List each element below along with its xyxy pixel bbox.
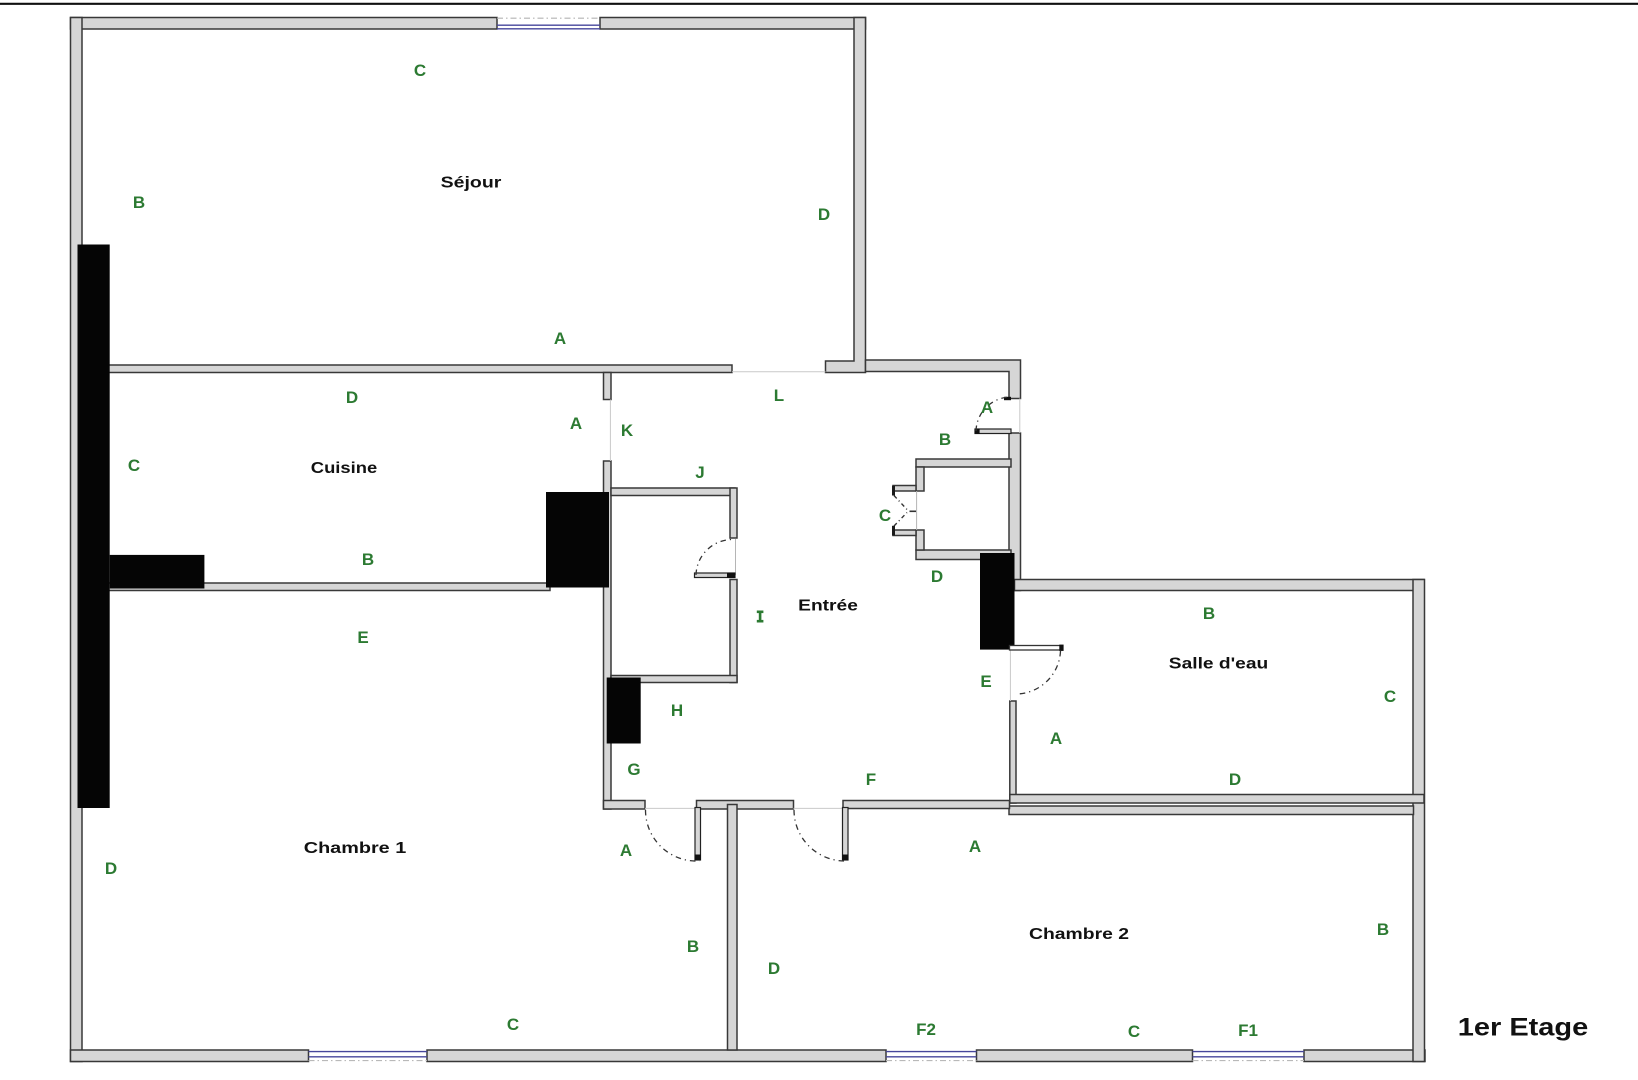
svg-text:C: C <box>1128 1022 1140 1041</box>
svg-text:D: D <box>768 959 780 978</box>
svg-text:A: A <box>981 398 993 417</box>
svg-text:F: F <box>866 770 876 789</box>
svg-text:D: D <box>105 859 117 878</box>
svg-text:F2: F2 <box>916 1020 936 1039</box>
svg-text:A: A <box>570 414 582 433</box>
svg-text:C: C <box>879 506 891 525</box>
svg-text:B: B <box>1203 604 1215 623</box>
svg-text:Chambre 1: Chambre 1 <box>304 839 407 857</box>
svg-text:D: D <box>818 205 830 224</box>
svg-text:A: A <box>554 329 566 348</box>
svg-text:A: A <box>969 837 981 856</box>
svg-text:Chambre 2: Chambre 2 <box>1029 925 1129 943</box>
svg-text:L: L <box>774 386 784 405</box>
svg-text:B: B <box>687 937 699 956</box>
svg-text:D: D <box>346 388 358 407</box>
svg-text:D: D <box>1229 770 1241 789</box>
svg-text:J: J <box>695 463 704 482</box>
svg-text:Séjour: Séjour <box>441 173 502 191</box>
svg-text:C: C <box>414 61 426 80</box>
svg-text:Cuisine: Cuisine <box>311 458 377 477</box>
svg-text:E: E <box>980 672 991 691</box>
svg-text:E: E <box>357 628 368 647</box>
svg-text:B: B <box>362 550 374 569</box>
svg-text:C: C <box>507 1015 519 1034</box>
svg-text:A: A <box>1050 729 1062 748</box>
svg-text:Entrée: Entrée <box>798 596 858 614</box>
svg-text:Salle d'eau: Salle d'eau <box>1169 654 1268 672</box>
svg-text:C: C <box>1384 687 1396 706</box>
svg-text:K: K <box>621 421 634 440</box>
svg-text:G: G <box>627 760 640 779</box>
svg-text:1er Etage: 1er Etage <box>1458 1012 1589 1041</box>
svg-text:B: B <box>133 193 145 212</box>
svg-text:A: A <box>620 841 632 860</box>
svg-text:B: B <box>1377 920 1389 939</box>
svg-text:F1: F1 <box>1238 1021 1258 1040</box>
svg-text:H: H <box>671 701 683 720</box>
svg-text:D: D <box>931 567 943 586</box>
svg-text:B: B <box>939 430 951 449</box>
svg-text:C: C <box>128 456 140 475</box>
